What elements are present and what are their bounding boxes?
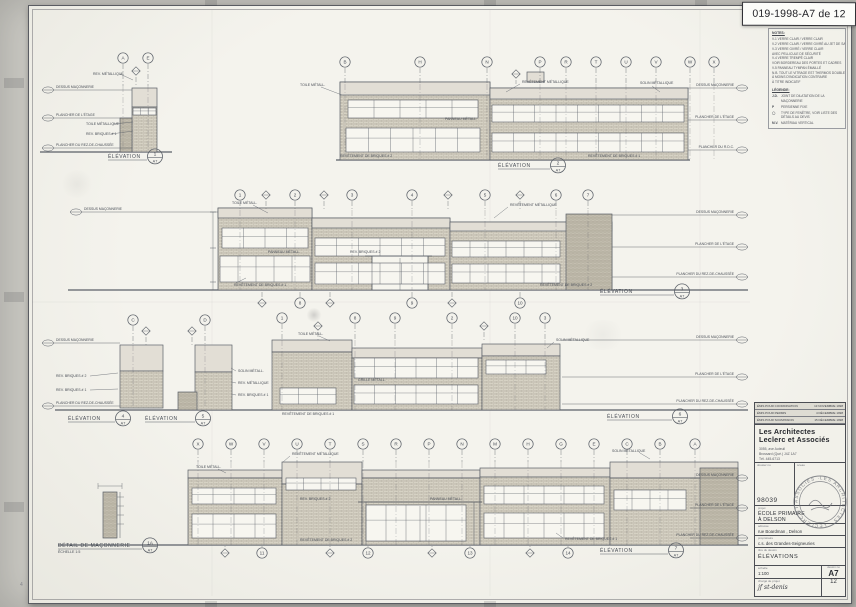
legend-item: J.D.JOINT DE DILATATION DE LA MAÇONNERIE (772, 94, 843, 104)
legend-text: MATÉRIAU VERTICAL (781, 121, 843, 126)
scan-edge-mark (4, 502, 24, 512)
scan-edge-mark (484, 0, 496, 6)
architect-stamp: LES ARCHITECTES · LECLERC ET ASSOCIÉS · … (791, 473, 849, 531)
revision-date: 15 DÉCEMBRE 1998 (814, 418, 843, 423)
revision-row: ÉMIS POUR SOUMISSION 15 DÉCEMBRE 1998 (755, 417, 845, 424)
scale-value: 1:100 (758, 571, 818, 576)
drawing-sheet (28, 5, 852, 604)
drawing-title-value: ÉLÉVATIONS (758, 554, 842, 560)
scan-edge-mark (205, 0, 217, 6)
project-lead-cell: chargé de projet jf st-denis (755, 579, 821, 597)
scan-edge-mark (4, 292, 24, 302)
dossier-number: 98039 (757, 497, 792, 504)
legend-items: J.D.JOINT DE DILATATION DE LA MAÇONNERIE… (772, 94, 843, 126)
legend-text: JOINT DE DILATATION DE LA MAÇONNERIE (781, 94, 843, 104)
drawing-title-cell: titre du dessin ÉLÉVATIONS (755, 548, 845, 566)
revision-date: 4 DÉCEMBRE 1998 (816, 411, 843, 416)
scale-cell: échelle 1:100 (755, 566, 821, 579)
dossier-cell: dossier no 98039 (755, 463, 795, 505)
architect-firm-block: Les Architectes Leclerc et Associés 3055… (755, 425, 845, 463)
drawing-title-label: titre du dessin (758, 549, 842, 553)
ink-smudge (306, 308, 322, 322)
dossier-label: dossier no (757, 464, 792, 468)
owner-cell: propriétaire c.s. des Grandes-Seigneurie… (755, 536, 845, 548)
scan-edge-mark (484, 601, 496, 607)
sheet-inner-border (32, 9, 848, 600)
project-lead-value: jf st-denis (758, 584, 818, 591)
owner-value: c.s. des Grandes-Seigneuries (758, 541, 842, 546)
revision-text: ÉMIS POUR PERMIS (757, 411, 786, 416)
revision-text: ÉMIS POUR SOUMISSION (757, 418, 794, 423)
legend-item: PPERSIENNE FIXE (772, 105, 843, 110)
list-line: V-2 VERRE CLAIR / VERRE GIVRÉ AU JET DE … (772, 42, 843, 47)
notes-title: NOTES: (772, 31, 843, 36)
revision-table: ÉMIS POUR COORDINATION 13 NOVEMBRE 1998 … (755, 403, 845, 425)
sheet-total-value: 12 (830, 579, 837, 585)
legend-symbol: P (772, 105, 781, 110)
legend-title: LÉGENDE: (772, 88, 843, 93)
firm-name-line2: Leclerc et Associés (759, 436, 841, 444)
legend-symbol: M.V. (772, 121, 781, 126)
legend-symbol: ◯ (772, 111, 781, 121)
sheet-corner-note: 4 (20, 582, 23, 588)
scan-edge-mark (4, 78, 24, 88)
revision-date: 13 NOVEMBRE 1998 (814, 404, 843, 409)
ink-smudge (580, 320, 626, 350)
notes-lines: V-1 VERRE CLAIR / VERRE CLAIRV-2 VERRE C… (772, 37, 843, 85)
scan-edge-mark (205, 601, 217, 607)
sheet-number-value: A7 (828, 570, 838, 579)
sheet-number-label: 019-1998-A7 de 12 (752, 8, 845, 20)
sheet-number-sticker: 019-1998-A7 de 12 (742, 2, 856, 27)
legend-symbol: J.D. (772, 94, 781, 104)
legend-item: M.V.MATÉRIAU VERTICAL (772, 121, 843, 126)
ink-smudge (60, 170, 94, 198)
legend-item: ◯TYPE DE FENÊTRE, VOIR LISTE DES DÉTAILS… (772, 111, 843, 121)
revision-text: ÉMIS POUR COORDINATION (757, 404, 798, 409)
legend-text: TYPE DE FENÊTRE, VOIR LISTE DES DÉTAILS … (781, 111, 843, 121)
revision-row: ÉMIS POUR COORDINATION 13 NOVEMBRE 1998 (755, 403, 845, 410)
firm-address: 3055, ave Auteuil Brossard (Qué.) J4Z 1A… (759, 447, 841, 461)
scan-edge-mark (695, 0, 707, 6)
title-block-bottom: échelle 1:100 chargé de projet jf st-den… (755, 566, 845, 597)
legend-text: PERSIENNE FIXE (781, 105, 843, 110)
sheet-number-cell: dessin no A7 12 (821, 566, 845, 597)
seal-label: sceau (797, 464, 843, 468)
revision-row: ÉMIS POUR PERMIS 4 DÉCEMBRE 1998 (755, 410, 845, 417)
scanned-drawing-page: 4 AEBHNPRTUVWX12345678910CD1892103XWVUTS… (0, 0, 856, 607)
notes-block: NOTES: V-1 VERRE CLAIR / VERRE CLAIRV-2 … (768, 28, 846, 129)
list-line: À TITRE INDICATIF (772, 80, 843, 85)
firm-address-line: Tél. 445-6713 (759, 457, 841, 462)
